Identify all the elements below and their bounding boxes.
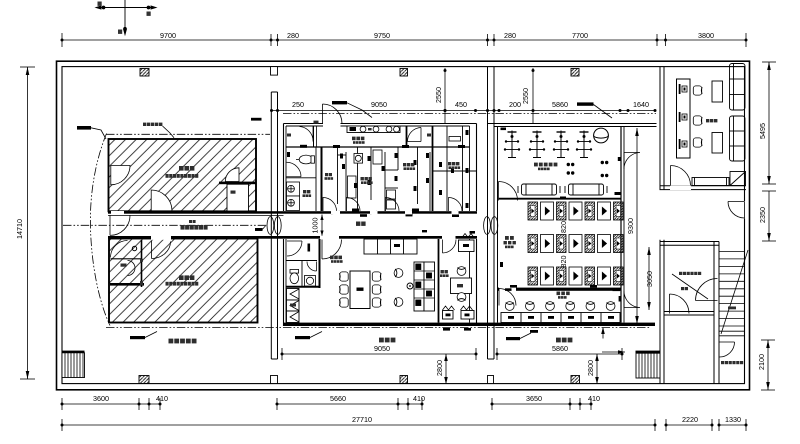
svg-text:2550: 2550 (521, 88, 530, 104)
svg-text:280: 280 (287, 31, 299, 40)
svg-text:2550: 2550 (434, 87, 443, 103)
svg-text:2220: 2220 (682, 415, 698, 424)
svg-text:9300: 9300 (626, 218, 635, 234)
svg-text:5495: 5495 (758, 123, 767, 139)
svg-text:1640: 1640 (633, 100, 649, 109)
svg-text:9050: 9050 (374, 344, 390, 353)
svg-text:9700: 9700 (160, 31, 176, 40)
svg-text:7700: 7700 (572, 31, 588, 40)
svg-text:3800: 3800 (698, 31, 714, 40)
svg-text:250: 250 (292, 100, 304, 109)
svg-text:410: 410 (588, 394, 600, 403)
svg-text:5860: 5860 (552, 100, 568, 109)
svg-text:280: 280 (504, 31, 516, 40)
svg-text:2800: 2800 (586, 360, 595, 376)
svg-text:2800: 2800 (435, 360, 444, 376)
svg-text:3050: 3050 (645, 271, 654, 287)
svg-text:5860: 5860 (552, 344, 568, 353)
svg-text:410: 410 (413, 394, 425, 403)
svg-text:5660: 5660 (330, 394, 346, 403)
svg-text:27710: 27710 (352, 415, 372, 424)
svg-text:410: 410 (156, 394, 168, 403)
svg-text:820: 820 (559, 221, 568, 233)
svg-text:2100: 2100 (757, 354, 766, 370)
svg-text:820: 820 (559, 256, 568, 268)
svg-text:2350: 2350 (758, 207, 767, 223)
svg-text:1330: 1330 (725, 415, 741, 424)
svg-text:1000: 1000 (311, 218, 320, 234)
svg-text:9050: 9050 (371, 100, 387, 109)
svg-text:3650: 3650 (526, 394, 542, 403)
svg-text:9750: 9750 (374, 31, 390, 40)
svg-text:3600: 3600 (93, 394, 109, 403)
svg-text:200: 200 (509, 100, 521, 109)
svg-text:450: 450 (455, 100, 467, 109)
svg-text:14710: 14710 (15, 219, 24, 239)
